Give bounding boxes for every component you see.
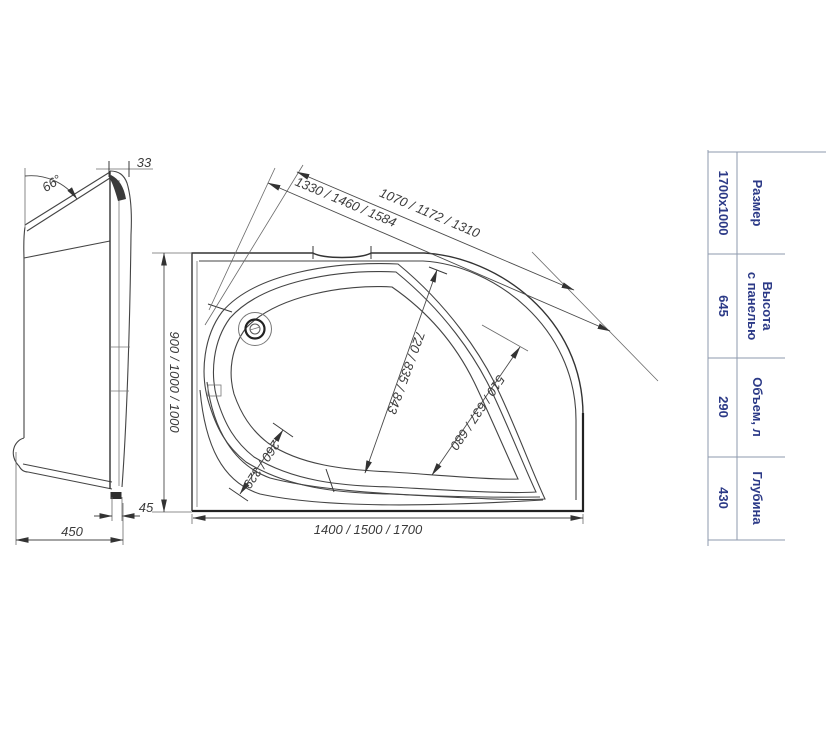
spec-table: 1700x1000 Размер 645 Высота с панелью 29… xyxy=(708,150,826,546)
spec-depth-value: 430 xyxy=(716,487,731,509)
dim-length-label: 1400 / 1500 / 1700 xyxy=(314,522,423,537)
dim-angle-label: 66° xyxy=(39,172,64,195)
dim-rim-width-label: 33 xyxy=(137,155,152,170)
dim-depth-label: 450 xyxy=(61,524,83,539)
spec-size-value: 1700x1000 xyxy=(716,170,731,235)
spec-size-label: Размер xyxy=(750,180,765,227)
spec-height-label-line2: с панелью xyxy=(745,272,760,340)
dim-basin-width-label: 510 / 637 / 680 xyxy=(447,372,508,453)
side-view: 33 66° 45 450 xyxy=(13,155,154,545)
dim-basin-length-label: 720 / 835 / 843 xyxy=(384,329,428,416)
top-view: 1330 / 1460 / 1584 1070 / 1172 / 1310 90… xyxy=(152,165,658,537)
spec-volume-value: 290 xyxy=(716,396,731,418)
spec-volume-label: Объем, л xyxy=(750,377,765,437)
drain-circle xyxy=(239,313,272,346)
rim-section-fill xyxy=(109,175,126,201)
dim-foot-width-label: 45 xyxy=(139,500,154,515)
dim-width-label: 900 / 1000 / 1000 xyxy=(167,331,182,433)
spec-height-label-line1: Высота xyxy=(760,282,775,332)
dim-diag-outer-label: 1330 / 1460 / 1584 xyxy=(293,174,399,230)
spec-height-value: 645 xyxy=(716,295,731,317)
spec-depth-label: Глубина xyxy=(750,471,765,525)
dim-seat-label: 260 / 329 xyxy=(240,437,283,491)
bathtub-drawing-page: 33 66° 45 450 xyxy=(0,0,826,734)
bathtub-drawing: 33 66° 45 450 xyxy=(0,0,826,734)
